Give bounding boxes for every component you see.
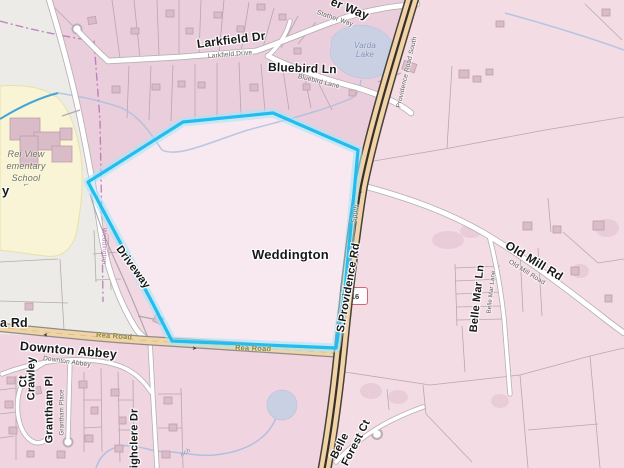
selection-layer: [0, 0, 624, 468]
selected-parcel-boundary[interactable]: [88, 113, 358, 348]
selected-parcel-glow: [88, 113, 358, 348]
map-canvas[interactable]: 16 er WayStather WayLarkfield DrLarkfiel…: [0, 0, 624, 468]
